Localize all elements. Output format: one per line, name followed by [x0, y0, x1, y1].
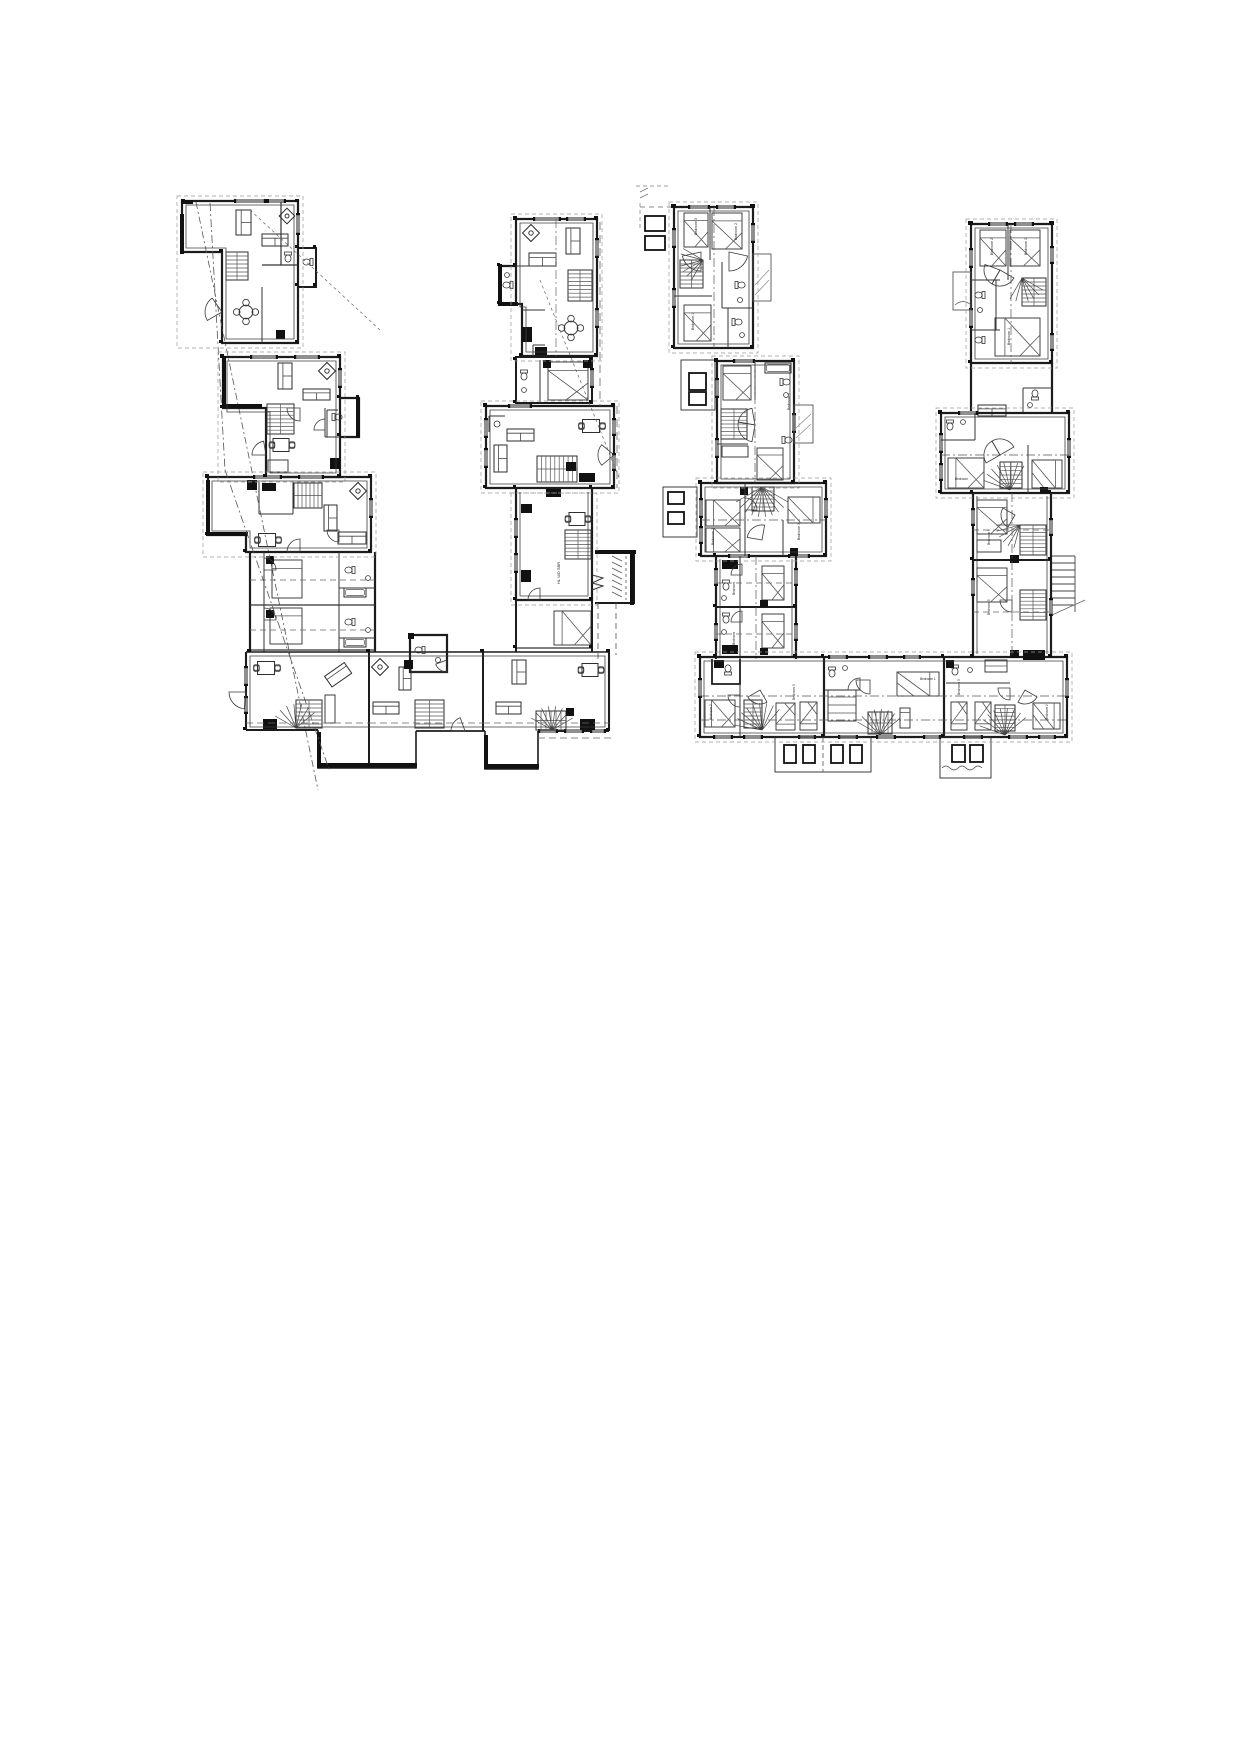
svg-text:Bedroom 3: Bedroom 3 [694, 218, 698, 235]
svg-text:Bedroom 2: Bedroom 2 [1045, 704, 1049, 720]
svg-text:Bedroom 2: Bedroom 2 [711, 528, 715, 545]
svg-text:Bedroom 5: Bedroom 5 [987, 529, 991, 545]
svg-text:Bedroom 3: Bedroom 3 [797, 523, 801, 540]
svg-text:Bedroom 2: Bedroom 2 [990, 238, 994, 255]
svg-text:Bedroom: Bedroom [732, 632, 736, 645]
svg-text:Bedroom 1: Bedroom 1 [1007, 328, 1011, 345]
svg-text:Bedroom: Bedroom [955, 477, 968, 481]
svg-text:HL WD SBR: HL WD SBR [556, 562, 561, 584]
svg-text:Bedroom 5: Bedroom 5 [987, 599, 991, 615]
svg-text:Bedroom: Bedroom [732, 582, 736, 595]
svg-text:Bedroom 3: Bedroom 3 [792, 684, 796, 700]
svg-text:Bedroom 2: Bedroom 2 [709, 704, 713, 720]
svg-text:Bedroom 1: Bedroom 1 [920, 677, 936, 681]
svg-text:Bedroom 3: Bedroom 3 [957, 679, 961, 695]
svg-text:Bedroom 2: Bedroom 2 [734, 223, 738, 240]
svg-text:Bedroom 1: Bedroom 1 [691, 313, 695, 330]
svg-text:Bedroom 3: Bedroom 3 [1024, 238, 1028, 255]
